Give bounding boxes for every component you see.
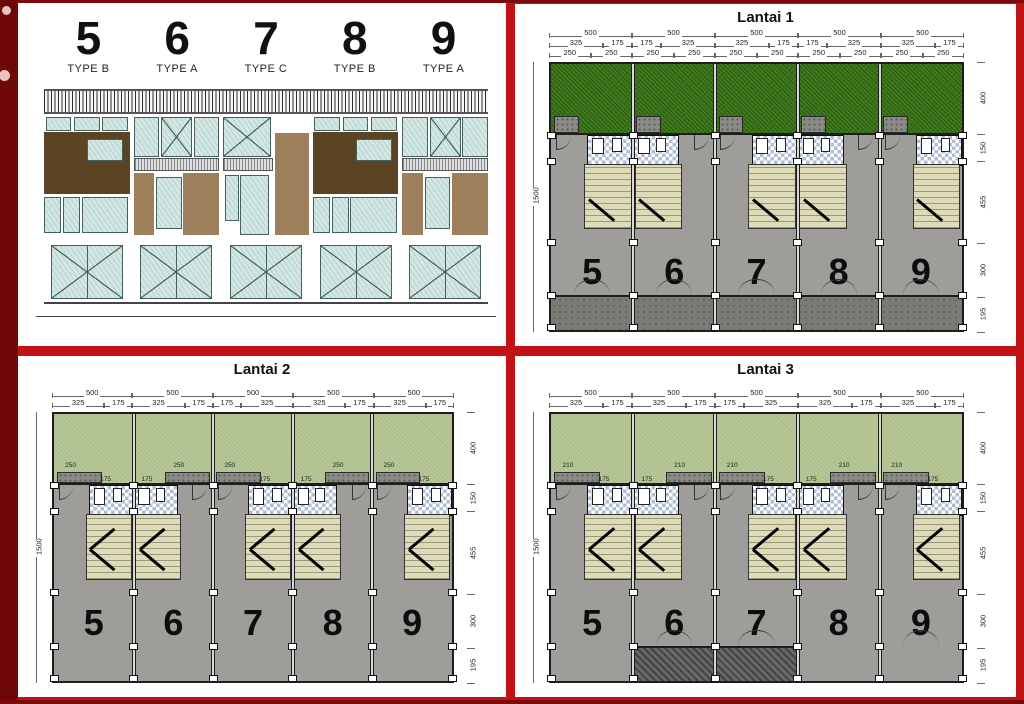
dimension-cell: 250 xyxy=(840,48,882,57)
window xyxy=(350,197,396,233)
unit-type: TYPE B xyxy=(44,63,133,75)
window xyxy=(313,197,330,233)
stair-arrow xyxy=(752,527,779,550)
unit-number: 9 xyxy=(399,15,488,61)
dimension-label: 175 xyxy=(609,39,626,47)
balcony-ledge xyxy=(325,472,370,484)
planter-box xyxy=(554,116,579,133)
plan-title: Lantai 2 xyxy=(18,361,506,378)
dimension-cell: 250 xyxy=(881,48,923,57)
column-marker xyxy=(547,158,556,165)
column-marker xyxy=(958,675,967,682)
core-dimension: 175 xyxy=(806,476,817,483)
dimension-label: 175 xyxy=(351,399,368,407)
window xyxy=(343,117,369,131)
staircase xyxy=(748,164,796,229)
dimension-label: 500 xyxy=(325,389,342,397)
party-wall xyxy=(878,414,882,681)
party-wall xyxy=(631,414,635,681)
garden-area: 210 xyxy=(633,414,715,485)
column-marker xyxy=(629,643,638,650)
sink-fixture xyxy=(776,138,786,151)
core-dimension: 175 xyxy=(142,476,153,483)
dimension-label: 500 xyxy=(582,29,599,37)
dimension-cell: 325 xyxy=(374,398,426,407)
dimension-cell: 325 xyxy=(881,38,935,47)
balcony-railing xyxy=(402,158,488,171)
dimension-label: 250 xyxy=(727,49,744,57)
dimension-cell: 500 xyxy=(374,388,454,397)
dimension-label: 500 xyxy=(831,389,848,397)
planter-dimension: 250 xyxy=(384,462,395,469)
dimension-segment: 150 xyxy=(974,134,988,161)
column-marker xyxy=(711,589,720,596)
column-marker xyxy=(793,324,802,331)
column-marker xyxy=(547,292,556,299)
dimension-segment: 455 xyxy=(974,161,988,243)
column-marker xyxy=(793,675,802,682)
dimension-cell: 175 xyxy=(426,398,454,407)
planter-box xyxy=(883,116,908,133)
column-marker xyxy=(368,589,377,596)
door-swing-arc xyxy=(858,135,873,150)
dimension-segment: 195 xyxy=(974,297,988,332)
dimension-cell: 325 xyxy=(132,398,184,407)
facade-unit-type-B xyxy=(313,117,399,235)
staircase xyxy=(913,164,961,229)
dimension-label: 325 xyxy=(651,399,668,407)
column-marker xyxy=(875,589,884,596)
stair-arrow xyxy=(639,527,666,550)
column-marker xyxy=(547,508,556,515)
garden-area: 250 xyxy=(54,414,134,485)
toilet-fixture xyxy=(921,138,933,154)
dimension-label: 325 xyxy=(311,399,328,407)
party-wall xyxy=(713,64,717,330)
window xyxy=(223,117,271,157)
floorplan-panel-lantai-1: Lantai 150050050050050032517517532532517… xyxy=(515,4,1016,346)
dimension-cell: 175 xyxy=(632,38,661,47)
column-marker xyxy=(209,589,218,596)
balcony-ledge xyxy=(216,472,261,484)
stair-arrow xyxy=(89,528,115,551)
staircase xyxy=(245,514,291,579)
unit-type: TYPE A xyxy=(399,63,488,75)
column-marker xyxy=(288,643,297,650)
glass-door xyxy=(230,245,302,299)
elevation-unit-label: 5TYPE B xyxy=(44,15,133,75)
column-marker xyxy=(448,482,457,489)
facade-unit-type-B xyxy=(44,117,130,235)
window xyxy=(63,197,80,233)
unit-9: 9 xyxy=(880,64,962,330)
facade-unit-ground xyxy=(44,243,130,301)
dimension-cell: 500 xyxy=(881,28,964,37)
garden-area xyxy=(798,64,880,135)
dimension-right: 400150455300195 xyxy=(974,412,988,683)
balcony-ledge xyxy=(666,472,712,484)
column-marker xyxy=(50,508,59,515)
left-maroon-strip xyxy=(0,0,18,704)
column-marker xyxy=(129,482,138,489)
door-swing-arc xyxy=(377,485,391,500)
garden-area: 250 xyxy=(293,414,373,485)
column-marker xyxy=(629,158,638,165)
party-wall xyxy=(291,414,295,681)
stair-arrow xyxy=(916,527,943,550)
balcony-ledge xyxy=(165,472,210,484)
window xyxy=(46,117,72,131)
column-marker xyxy=(711,324,720,331)
dimension-cell: 325 xyxy=(744,398,798,407)
plan-title: Lantai 3 xyxy=(515,361,1016,378)
dimension-label: 175 xyxy=(941,399,958,407)
column-marker xyxy=(711,675,720,682)
unit-number: 8 xyxy=(798,605,880,641)
dimension-cell: 175 xyxy=(185,398,213,407)
dimension-label: 300 xyxy=(469,612,478,630)
stair-arrow xyxy=(588,527,615,550)
unit-number: 6 xyxy=(134,605,214,641)
window xyxy=(240,175,269,235)
dimension-left: 1500 xyxy=(527,62,541,332)
elevation-unit-label: 7TYPE C xyxy=(222,15,311,75)
door-swing-arc xyxy=(694,485,709,500)
column-marker xyxy=(50,482,59,489)
dimension-label: 250 xyxy=(561,49,578,57)
dimension-left: 1500 xyxy=(30,412,44,683)
unit-number: 8 xyxy=(293,605,373,641)
dimension-cell: 250 xyxy=(923,48,965,57)
dimension-cell: 325 xyxy=(241,398,293,407)
stair-arrow xyxy=(803,198,830,221)
dimension-cell: 500 xyxy=(549,388,632,397)
garden-area: 210 xyxy=(798,414,880,485)
column-marker xyxy=(875,508,884,515)
sink-fixture xyxy=(941,488,951,501)
window xyxy=(462,117,488,157)
planter-dimension: 250 xyxy=(333,462,344,469)
window xyxy=(402,117,428,157)
unit-8: 8 xyxy=(798,64,880,330)
dimension-cell: 250 xyxy=(591,48,633,57)
column-marker xyxy=(50,589,59,596)
party-wall xyxy=(713,414,717,681)
toilet-fixture xyxy=(592,488,604,504)
planter-dimension: 210 xyxy=(839,462,850,469)
dimension-label: 325 xyxy=(734,39,751,47)
staircase xyxy=(135,514,181,579)
window xyxy=(156,177,182,229)
balcony-ledge xyxy=(883,472,929,484)
column-marker xyxy=(711,239,720,246)
column-marker xyxy=(711,643,720,650)
stair-arrow xyxy=(249,548,275,571)
facade-panel-light xyxy=(452,173,488,235)
dimension-row: 500500500500500 xyxy=(549,388,964,397)
unit-number: 5 xyxy=(44,15,133,61)
column-marker xyxy=(448,675,457,682)
core-dimension: 175 xyxy=(763,476,774,483)
sink-fixture xyxy=(821,488,831,501)
window xyxy=(430,117,461,157)
dimension-cell: 250 xyxy=(674,48,716,57)
unit-5: 5 xyxy=(551,64,633,330)
core-dimension: 175 xyxy=(259,476,270,483)
facade-unit-type-A xyxy=(134,117,220,235)
column-marker xyxy=(368,482,377,489)
dimension-cell: 250 xyxy=(757,48,799,57)
dimension-cell: 175 xyxy=(798,38,827,47)
dimension-cell: 500 xyxy=(632,388,715,397)
toilet-fixture xyxy=(638,488,650,504)
stair-arrow xyxy=(752,548,779,571)
stair-arrow xyxy=(916,198,943,221)
stair-arrow xyxy=(803,527,830,550)
stair-arrow xyxy=(89,548,115,571)
dimension-segment: 150 xyxy=(974,484,988,511)
column-marker xyxy=(547,239,556,246)
sink-fixture xyxy=(156,488,166,501)
balcony-ledge xyxy=(719,472,765,484)
elevation-labels: 5TYPE B6TYPE A7TYPE C8TYPE B9TYPE A xyxy=(44,15,488,75)
party-wall xyxy=(211,414,215,681)
dimension-segment: 195 xyxy=(974,648,988,683)
dimension-label: 325 xyxy=(150,399,167,407)
column-marker xyxy=(629,675,638,682)
column-marker xyxy=(629,239,638,246)
staircase xyxy=(584,514,632,579)
dimension-label: 150 xyxy=(979,489,988,507)
column-marker xyxy=(129,589,138,596)
sink-fixture xyxy=(315,488,325,501)
garden-area: 250 xyxy=(213,414,293,485)
plan-drawing: 21017552101756210175721017582101759 xyxy=(549,412,964,683)
staircase xyxy=(584,164,632,229)
facade-panel-dark xyxy=(313,132,399,194)
stair-arrow xyxy=(298,528,324,551)
toilet-fixture xyxy=(94,488,105,504)
staircase xyxy=(799,514,847,579)
column-marker xyxy=(209,482,218,489)
core-dimension: 175 xyxy=(419,476,430,483)
planter-dimension: 210 xyxy=(563,462,574,469)
dimension-label: 300 xyxy=(979,612,988,630)
column-marker xyxy=(448,643,457,650)
dimension-cell: 250 xyxy=(632,48,674,57)
dimension-label: 500 xyxy=(665,389,682,397)
toilet-fixture xyxy=(412,488,423,504)
dimension-label: 455 xyxy=(979,193,988,211)
sink-fixture xyxy=(272,488,282,501)
balcony-ledge xyxy=(830,472,876,484)
dimension-label: 500 xyxy=(406,389,423,397)
roof-band xyxy=(44,89,488,114)
column-marker xyxy=(547,643,556,650)
stair-arrow xyxy=(639,548,666,571)
dimension-label: 325 xyxy=(568,399,585,407)
dimension-row: 325175325175175325325175325175 xyxy=(52,398,454,407)
dimension-label: 250 xyxy=(686,49,703,57)
dimension-label: 175 xyxy=(775,39,792,47)
glass-door xyxy=(320,245,392,299)
decor-dot xyxy=(0,70,10,81)
sink-fixture xyxy=(431,488,441,501)
column-marker xyxy=(793,292,802,299)
column-marker xyxy=(875,675,884,682)
dimension-label: 325 xyxy=(763,399,780,407)
door-swing-arc xyxy=(885,135,900,150)
dimension-label: 175 xyxy=(432,399,449,407)
column-marker xyxy=(875,132,884,139)
party-wall xyxy=(631,64,635,330)
dimension-cell: 500 xyxy=(715,388,798,397)
dimension-label: 325 xyxy=(900,399,917,407)
second-storey xyxy=(44,117,488,235)
dimension-label: 500 xyxy=(748,29,765,37)
dimension-label: 500 xyxy=(665,29,682,37)
dimension-label: 500 xyxy=(245,389,262,397)
window xyxy=(74,117,100,131)
door-swing-arc xyxy=(885,485,900,500)
staircase xyxy=(404,514,450,579)
column-marker xyxy=(958,482,967,489)
dimension-label: 250 xyxy=(644,49,661,57)
stair-arrow xyxy=(408,528,434,551)
dimension-label: 195 xyxy=(979,305,988,323)
staircase xyxy=(294,514,340,579)
window xyxy=(225,175,239,221)
dimension-cell: 500 xyxy=(132,388,212,397)
stair-arrow xyxy=(588,198,615,221)
column-marker xyxy=(50,643,59,650)
door-swing-arc xyxy=(556,485,571,500)
facade-unit-ground xyxy=(402,243,488,301)
unit-number: 5 xyxy=(551,605,633,641)
unit-7: 7 xyxy=(715,64,797,330)
stair-arrow xyxy=(916,548,943,571)
staircase xyxy=(799,164,847,229)
facade-panel-light xyxy=(402,173,423,235)
column-marker xyxy=(448,589,457,596)
dimension-label: 250 xyxy=(935,49,952,57)
elevation-panel: 5TYPE B6TYPE A7TYPE C8TYPE B9TYPE A xyxy=(18,3,506,346)
dimension-cell: 500 xyxy=(293,388,373,397)
dimension-right: 400150455300195 xyxy=(974,62,988,332)
dimension-label: 400 xyxy=(469,439,478,457)
garden-area xyxy=(880,64,962,135)
window xyxy=(161,117,192,157)
column-marker xyxy=(793,239,802,246)
core-dimension: 175 xyxy=(599,476,610,483)
dimension-label: 175 xyxy=(692,399,709,407)
unit-8: 2501758 xyxy=(293,414,373,681)
column-marker xyxy=(793,643,802,650)
dimension-label: 325 xyxy=(391,399,408,407)
door-swing-arc xyxy=(218,485,232,500)
facade-panel-light xyxy=(275,133,309,235)
unit-number: 9 xyxy=(372,605,452,641)
party-wall xyxy=(878,64,882,330)
floorplan-panel-lantai-2: Lantai 250050050050050032517532517517532… xyxy=(18,356,506,697)
dimension-cell: 175 xyxy=(104,398,132,407)
dimension-row: 325175325175175325325175325175 xyxy=(549,398,964,407)
dimension-cell: 500 xyxy=(798,388,881,397)
stair-arrow xyxy=(588,548,615,571)
dimension-segment: 400 xyxy=(464,412,478,484)
unit-5: 2101755 xyxy=(551,414,633,681)
dimension-segment: 195 xyxy=(464,648,478,683)
dimension-label: 175 xyxy=(804,39,821,47)
dimension-label: 175 xyxy=(721,399,738,407)
dimension-label: 175 xyxy=(110,399,127,407)
dimension-label: 175 xyxy=(609,399,626,407)
planter-dimension: 250 xyxy=(173,462,184,469)
dimension-cell: 175 xyxy=(603,38,632,47)
garden-area: 250 xyxy=(372,414,452,485)
facade-unit-type-C xyxy=(223,117,309,235)
dimension-cell: 250 xyxy=(549,48,591,57)
dimension-label: 455 xyxy=(469,544,478,562)
column-marker xyxy=(448,508,457,515)
facade-unit-type-A xyxy=(402,117,488,235)
door-mullion xyxy=(445,246,446,298)
column-marker xyxy=(368,643,377,650)
dimension-cell: 175 xyxy=(935,398,964,407)
door-mullion xyxy=(356,246,357,298)
dimension-cell: 325 xyxy=(293,398,345,407)
column-marker xyxy=(958,643,967,650)
window xyxy=(371,117,397,131)
dimension-label: 250 xyxy=(769,49,786,57)
dimension-label: 250 xyxy=(603,49,620,57)
dimension-label: 250 xyxy=(852,49,869,57)
glass-door xyxy=(409,245,481,299)
staircase xyxy=(635,164,683,229)
sink-fixture xyxy=(612,138,622,151)
toilet-fixture xyxy=(253,488,264,504)
dimension-label: 195 xyxy=(979,656,988,674)
garden-area: 210 xyxy=(715,414,797,485)
dimension-row: 500500500500500 xyxy=(52,388,454,397)
dimension-label: 1500 xyxy=(35,539,44,557)
dimension-cell: 175 xyxy=(769,38,798,47)
dimension-label: 325 xyxy=(817,399,834,407)
dimension-label: 500 xyxy=(914,29,931,37)
balcony-ledge xyxy=(554,472,600,484)
toilet-fixture xyxy=(756,138,768,154)
dimension-cell: 175 xyxy=(213,398,241,407)
unit-type: TYPE B xyxy=(310,63,399,75)
column-marker xyxy=(129,508,138,515)
balcony-ledge xyxy=(376,472,421,484)
stair-arrow xyxy=(139,548,165,571)
garden-area xyxy=(715,64,797,135)
sink-fixture xyxy=(113,488,123,501)
column-marker xyxy=(209,643,218,650)
party-wall xyxy=(796,64,800,330)
unit-number: 7 xyxy=(213,605,293,641)
dimension-segment: 300 xyxy=(464,594,478,648)
door-mullion xyxy=(176,246,177,298)
door-mullion xyxy=(87,246,88,298)
staircase xyxy=(86,514,132,579)
column-marker xyxy=(958,324,967,331)
dimension-cell: 500 xyxy=(715,28,798,37)
dimension-cell: 500 xyxy=(881,388,964,397)
column-marker xyxy=(711,292,720,299)
sink-fixture xyxy=(941,138,951,151)
